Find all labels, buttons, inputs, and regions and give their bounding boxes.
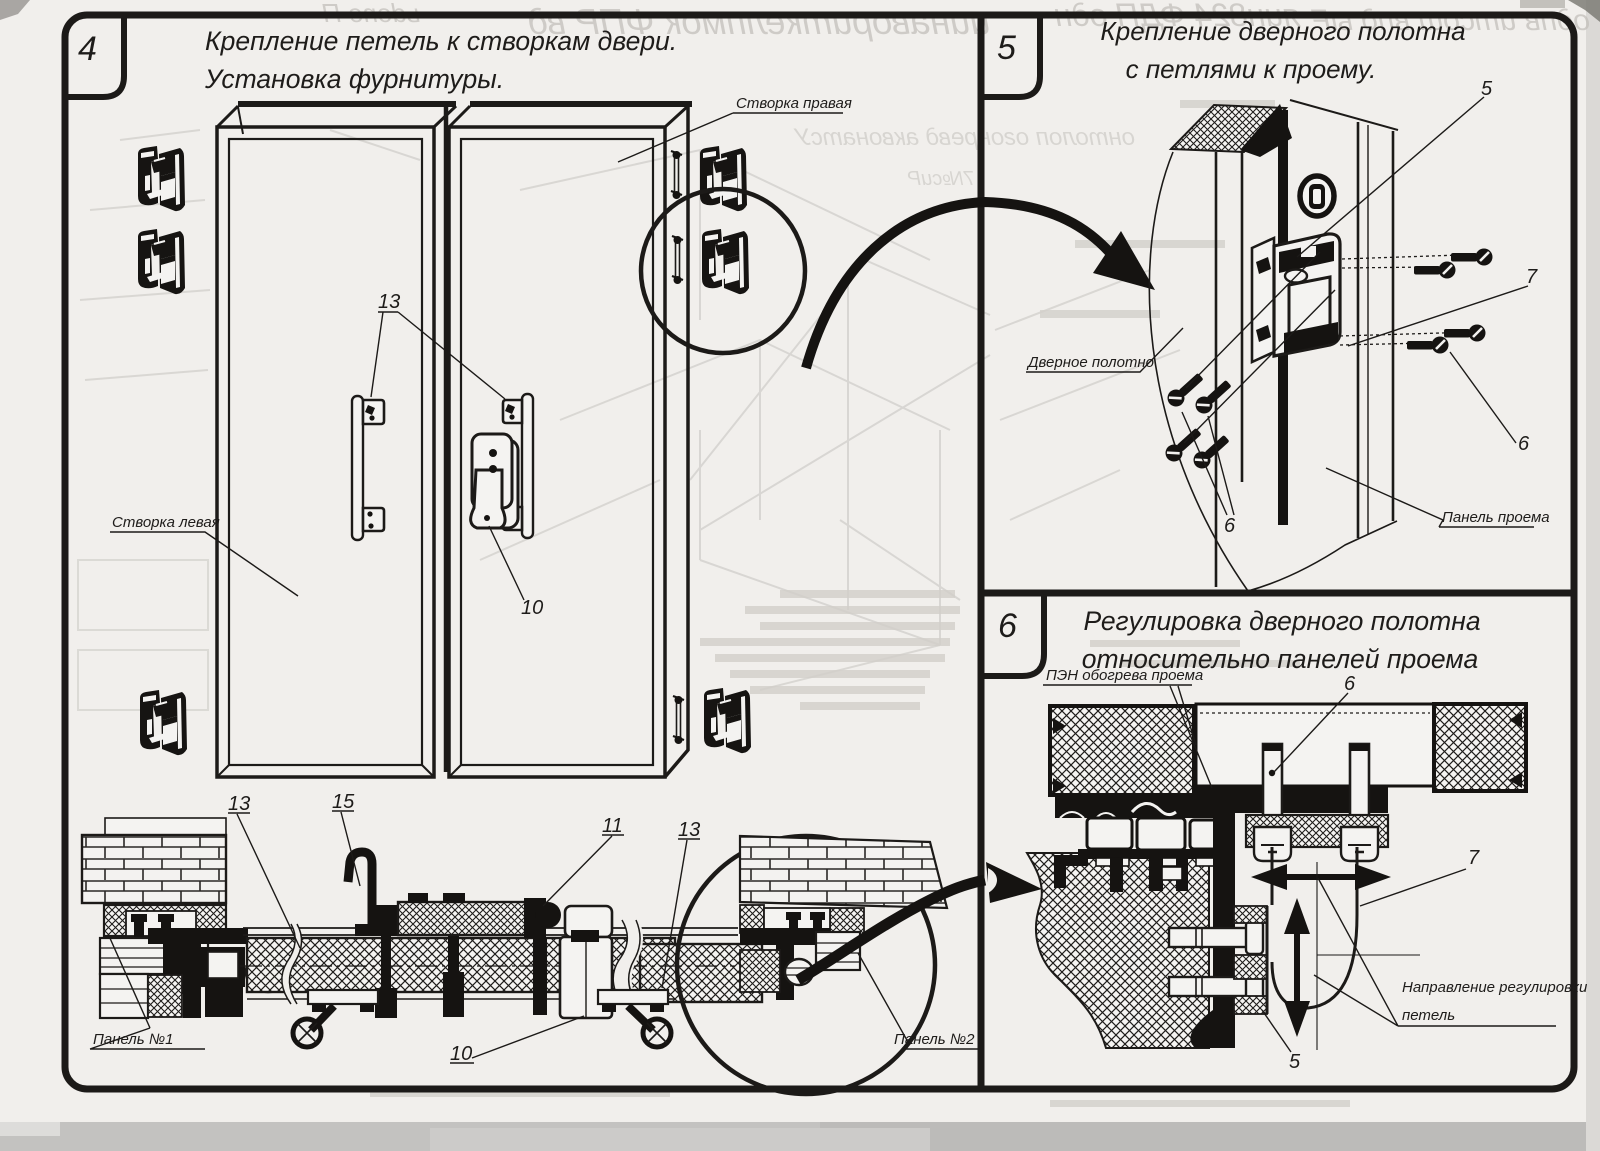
svg-text:5: 5: [1289, 1051, 1301, 1073]
svg-text:15: 15: [332, 791, 355, 813]
svg-text:Крепление петель к створкам дв: Крепление петель к створкам двери.: [205, 26, 677, 56]
svg-text:7№сиР: 7№сиР: [907, 168, 975, 190]
svg-text:петель: петель: [1402, 1007, 1455, 1024]
svg-text:10: 10: [450, 1043, 472, 1065]
svg-text:4: 4: [78, 30, 97, 68]
svg-text:Створка левая: Створка левая: [112, 514, 220, 531]
svg-text:с петлями к проему.: с петлями к проему.: [1126, 54, 1377, 84]
svg-text:онтолоп огонревд аквонатсУ: онтолоп огонревд аквонатсУ: [793, 124, 1135, 151]
svg-text:Дверное полотно: Дверное полотно: [1026, 354, 1154, 371]
svg-text:5: 5: [1481, 78, 1493, 100]
svg-text:Установка фурнитуры.: Установка фурнитуры.: [204, 64, 504, 94]
svg-text:Направление регулировки: Направление регулировки: [1402, 979, 1588, 996]
svg-text:13: 13: [228, 793, 250, 815]
svg-text:ПЭН обогрева проема: ПЭН обогрева проема: [1046, 667, 1203, 684]
svg-text:5: 5: [997, 29, 1016, 67]
svg-text:11: 11: [602, 815, 623, 837]
svg-text:Регулировка дверного полотна: Регулировка дверного полотна: [1083, 606, 1480, 636]
svg-text:Крепление дверного полотна: Крепление дверного полотна: [1100, 16, 1465, 46]
svg-text:6: 6: [998, 607, 1017, 645]
svg-text:Панель проема: Панель проема: [1442, 509, 1550, 526]
svg-text:13: 13: [678, 819, 700, 841]
svg-text:6: 6: [1224, 515, 1236, 537]
svg-text:7: 7: [1468, 847, 1480, 869]
svg-text:6: 6: [1518, 433, 1530, 455]
svg-text:10: 10: [521, 597, 543, 619]
svg-text:7: 7: [1526, 266, 1538, 288]
svg-text:13: 13: [378, 291, 400, 313]
svg-text:6: 6: [1344, 673, 1356, 695]
svg-text:Створка правая: Створка правая: [736, 95, 852, 112]
